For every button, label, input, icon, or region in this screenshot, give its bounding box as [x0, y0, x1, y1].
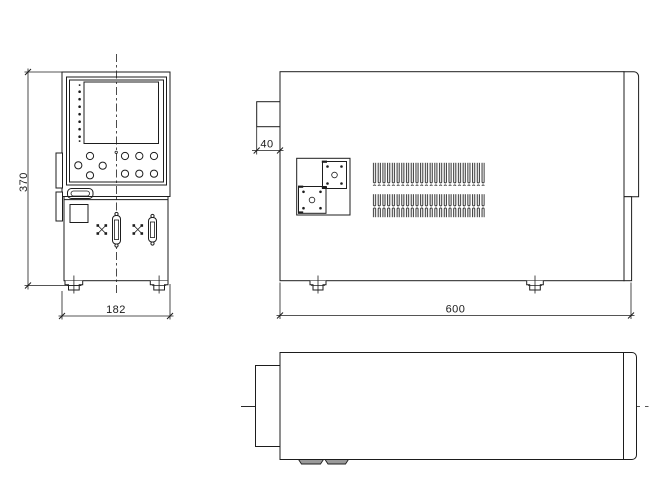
side-front-bezel-lower: [624, 197, 632, 281]
hinge-tab-lower: [56, 192, 63, 221]
side-front-bezel: [624, 72, 639, 197]
vent-grille-bottom: [372, 194, 485, 217]
plan-body: [280, 353, 637, 460]
plan-rear-protrusion: [256, 366, 281, 447]
side-view: [257, 72, 639, 294]
front-view: [56, 54, 170, 294]
plan-view: [241, 353, 649, 465]
vent-grille-top: [372, 163, 485, 186]
drawing-canvas: 370 182 600 40: [0, 0, 650, 484]
plan-tab: [325, 460, 349, 465]
dimension-label-depth: 600: [446, 304, 466, 316]
dimension-label-height: 370: [18, 172, 30, 192]
plan-tab: [299, 460, 324, 465]
dsub-connector-right: [149, 214, 157, 245]
switch-square: [70, 205, 88, 223]
technical-drawing-page: VTA-20KC(MASTER): [0, 0, 650, 484]
rear-protrusion: [257, 102, 280, 127]
dimension-label-protrusion: 40: [260, 139, 273, 151]
dsub-connector-left: [113, 212, 121, 247]
dimension-label-width: 182: [106, 304, 126, 316]
front-upper-body: [62, 72, 170, 197]
hinge-tab-upper: [56, 153, 63, 188]
